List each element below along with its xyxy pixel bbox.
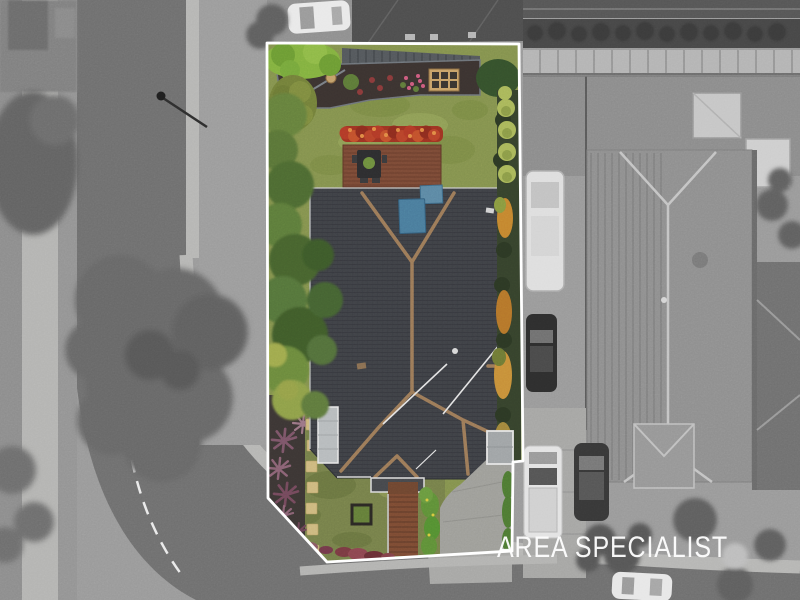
watermark-logo-text: AREA SPECIALIST <box>497 531 728 564</box>
aerial-photo: AREA SPECIALIST <box>0 0 800 600</box>
photo-grain <box>0 0 800 600</box>
